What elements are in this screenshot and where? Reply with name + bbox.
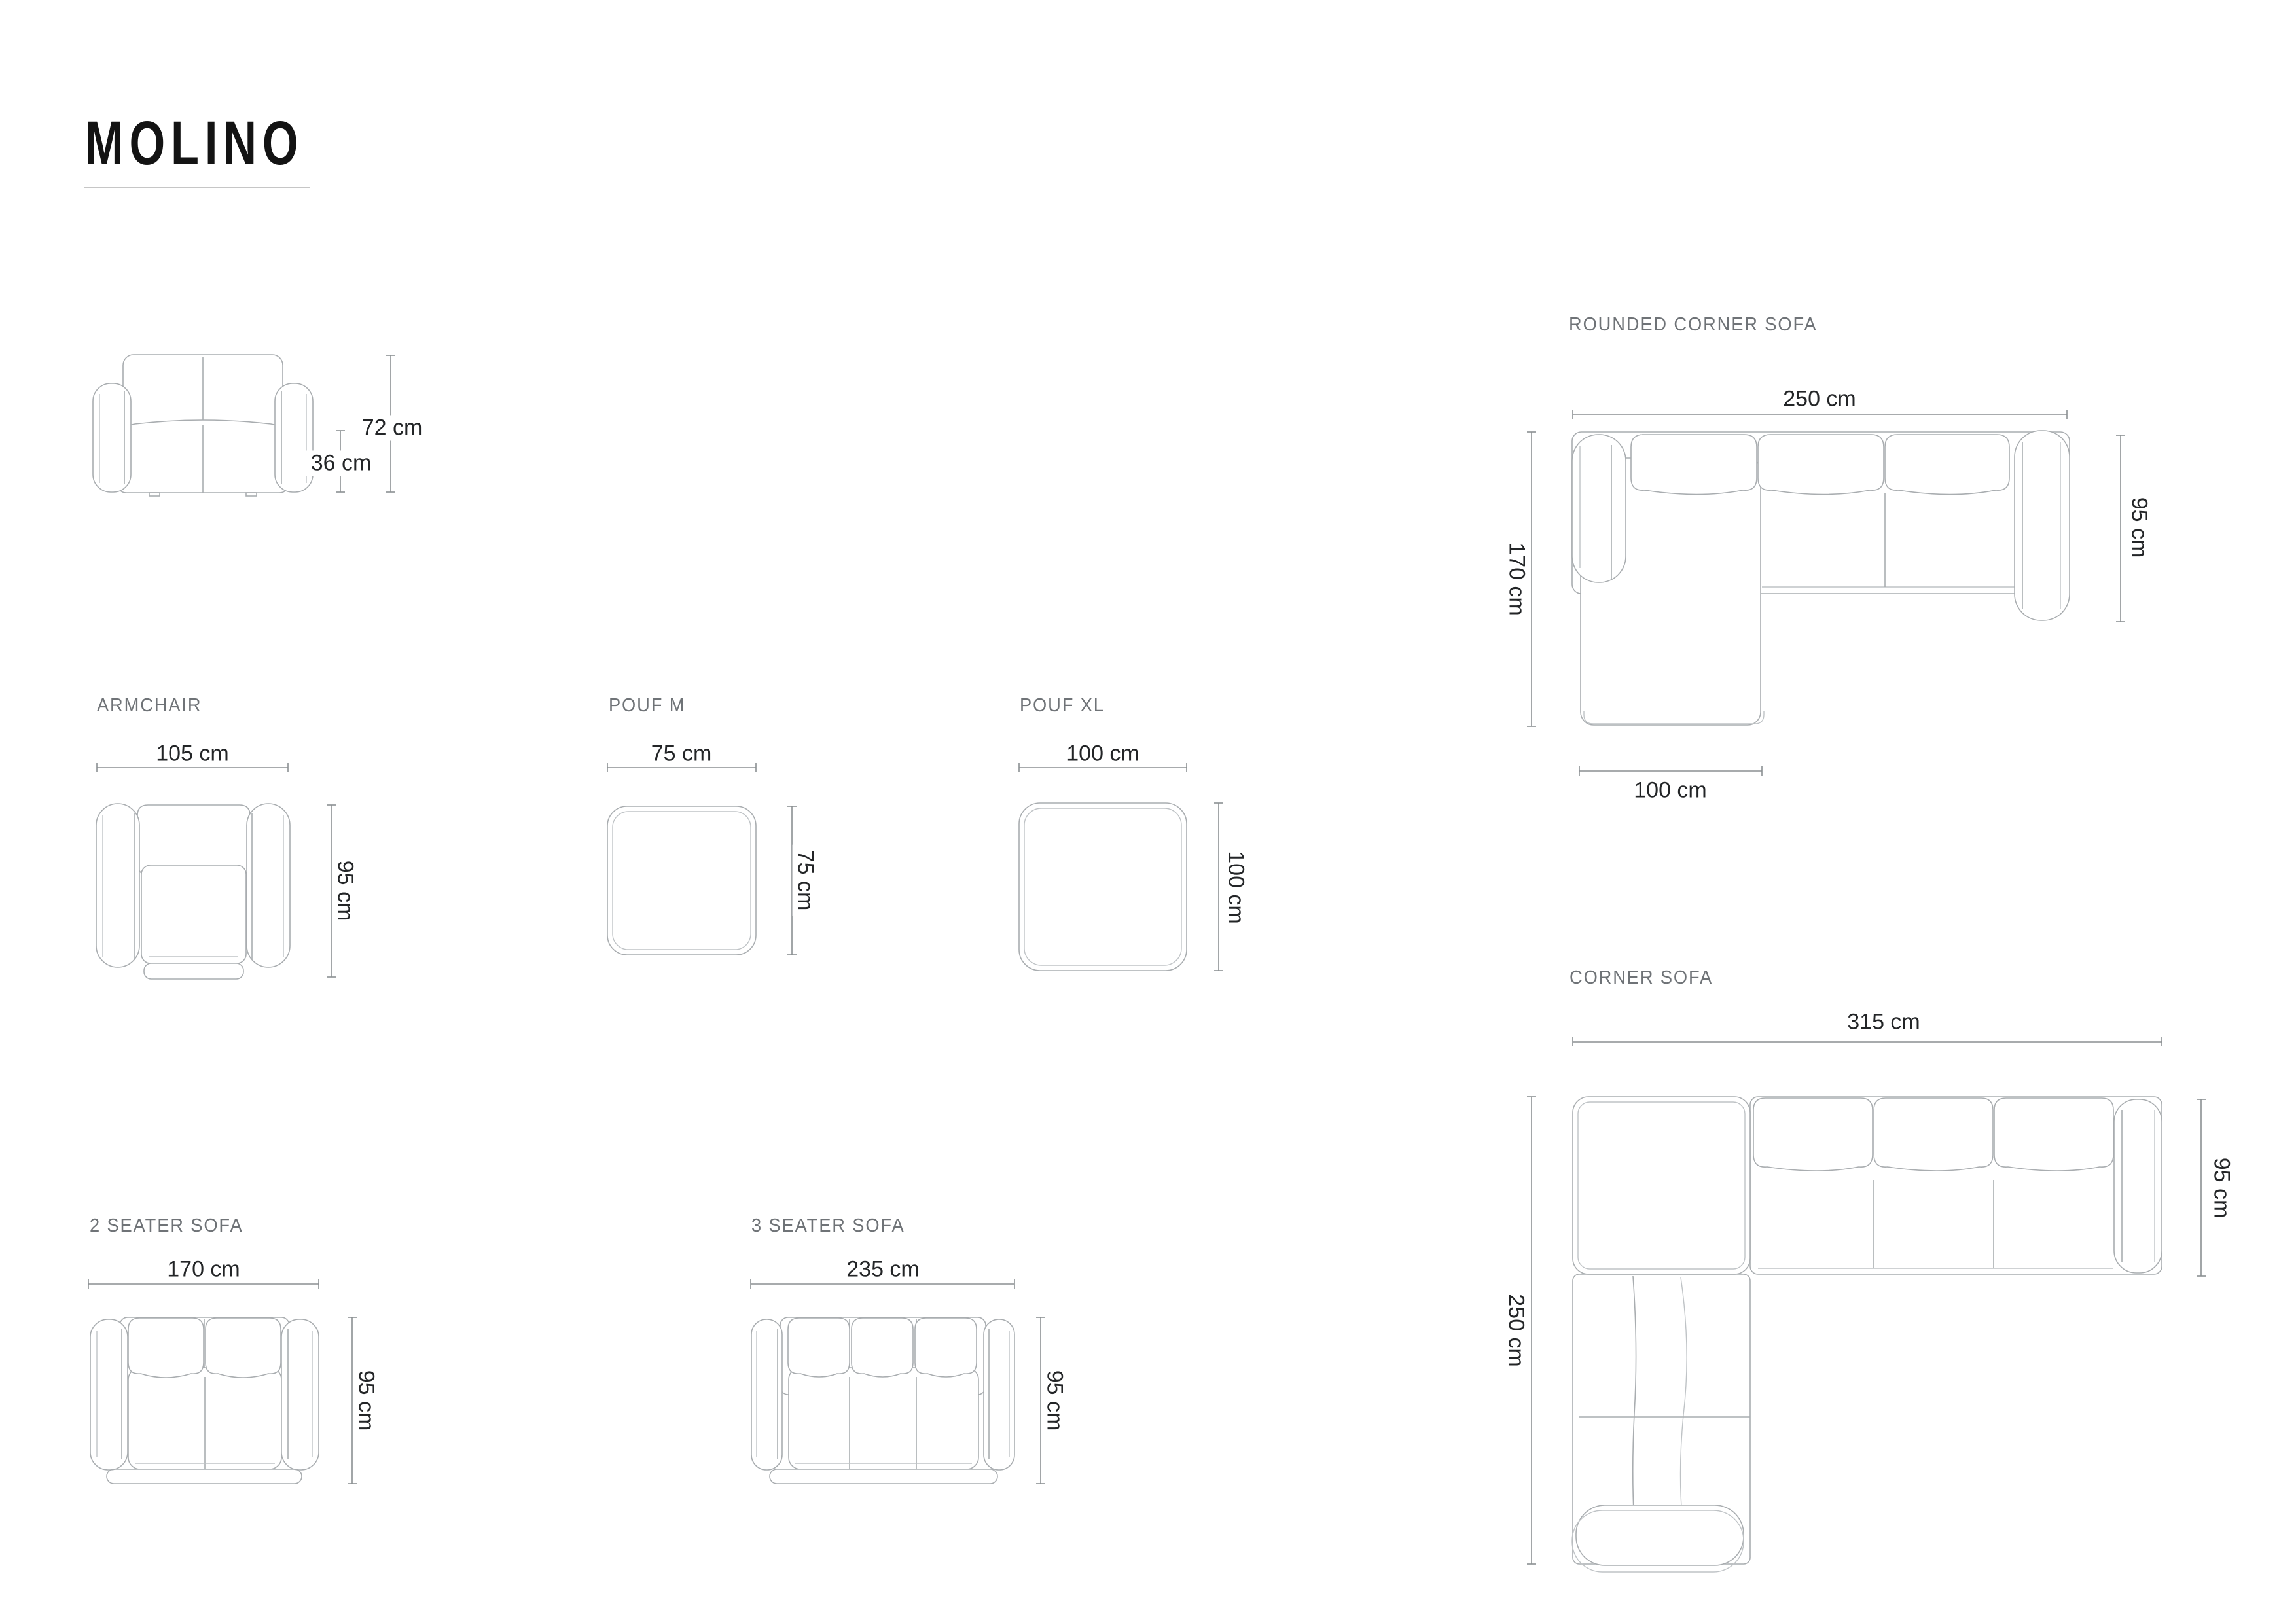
sofa-front-view-drawing xyxy=(93,355,313,496)
rounded-corner-sofa-width-dimension: 250 cm xyxy=(1778,386,1861,412)
corner-sofa-width-dimension: 315 cm xyxy=(1842,1009,1926,1035)
two-seater-label: 2 SEATER SOFA xyxy=(90,1215,243,1237)
corner-sofa-depth-dimension: 95 cm xyxy=(2208,1152,2234,1224)
page-title: MOLINO xyxy=(85,108,304,179)
pouf-m-depth-dimension: 75 cm xyxy=(792,845,817,916)
pouf-m-width-dimension: 75 cm xyxy=(646,741,717,766)
sofa-front-seat-height-dimension: 36 cm xyxy=(306,450,377,476)
armchair-drawing xyxy=(96,804,290,979)
pouf-xl-width-dimension: 100 cm xyxy=(1061,741,1145,766)
rounded-corner-sofa-chaise-width-dimension: 100 cm xyxy=(1628,777,1712,803)
title-underline xyxy=(84,187,310,188)
rounded-corner-sofa-depth-dimension: 95 cm xyxy=(2126,492,2151,563)
corner-sofa-side-dimension: 250 cm xyxy=(1503,1289,1528,1372)
two-seater-width-dimension: 170 cm xyxy=(162,1257,245,1282)
rounded-corner-sofa-drawing xyxy=(1572,431,2070,725)
pouf-m-label: POUF M xyxy=(609,695,685,717)
pouf-xl-label: POUF XL xyxy=(1020,695,1105,717)
three-seater-sofa-drawing xyxy=(751,1317,1014,1484)
armchair-label: ARMCHAIR xyxy=(97,695,202,717)
pouf-xl-drawing xyxy=(1019,803,1187,971)
rounded-corner-sofa-side-dimension: 170 cm xyxy=(1503,537,1529,621)
three-seater-label: 3 SEATER SOFA xyxy=(751,1215,905,1237)
sofa-front-height-dimension: 72 cm xyxy=(357,415,428,440)
two-seater-depth-dimension: 95 cm xyxy=(353,1365,378,1436)
three-seater-depth-dimension: 95 cm xyxy=(1041,1365,1067,1436)
rounded-corner-sofa-label: ROUNDED CORNER SOFA xyxy=(1569,314,1818,336)
armchair-depth-dimension: 95 cm xyxy=(332,855,357,927)
three-seater-width-dimension: 235 cm xyxy=(841,1257,925,1282)
corner-sofa-label: CORNER SOFA xyxy=(1570,967,1713,989)
line-art-layer xyxy=(0,0,2296,1623)
armchair-width-dimension: 105 cm xyxy=(151,741,234,766)
corner-sofa-drawing xyxy=(1572,1097,2162,1572)
two-seater-sofa-drawing xyxy=(90,1317,319,1484)
pouf-xl-depth-dimension: 100 cm xyxy=(1223,846,1248,929)
dimension-sheet: MOLINO 72 cm 36 cm ARMCHAIR 105 cm 95 cm… xyxy=(0,0,2296,1623)
pouf-m-drawing xyxy=(607,806,756,955)
